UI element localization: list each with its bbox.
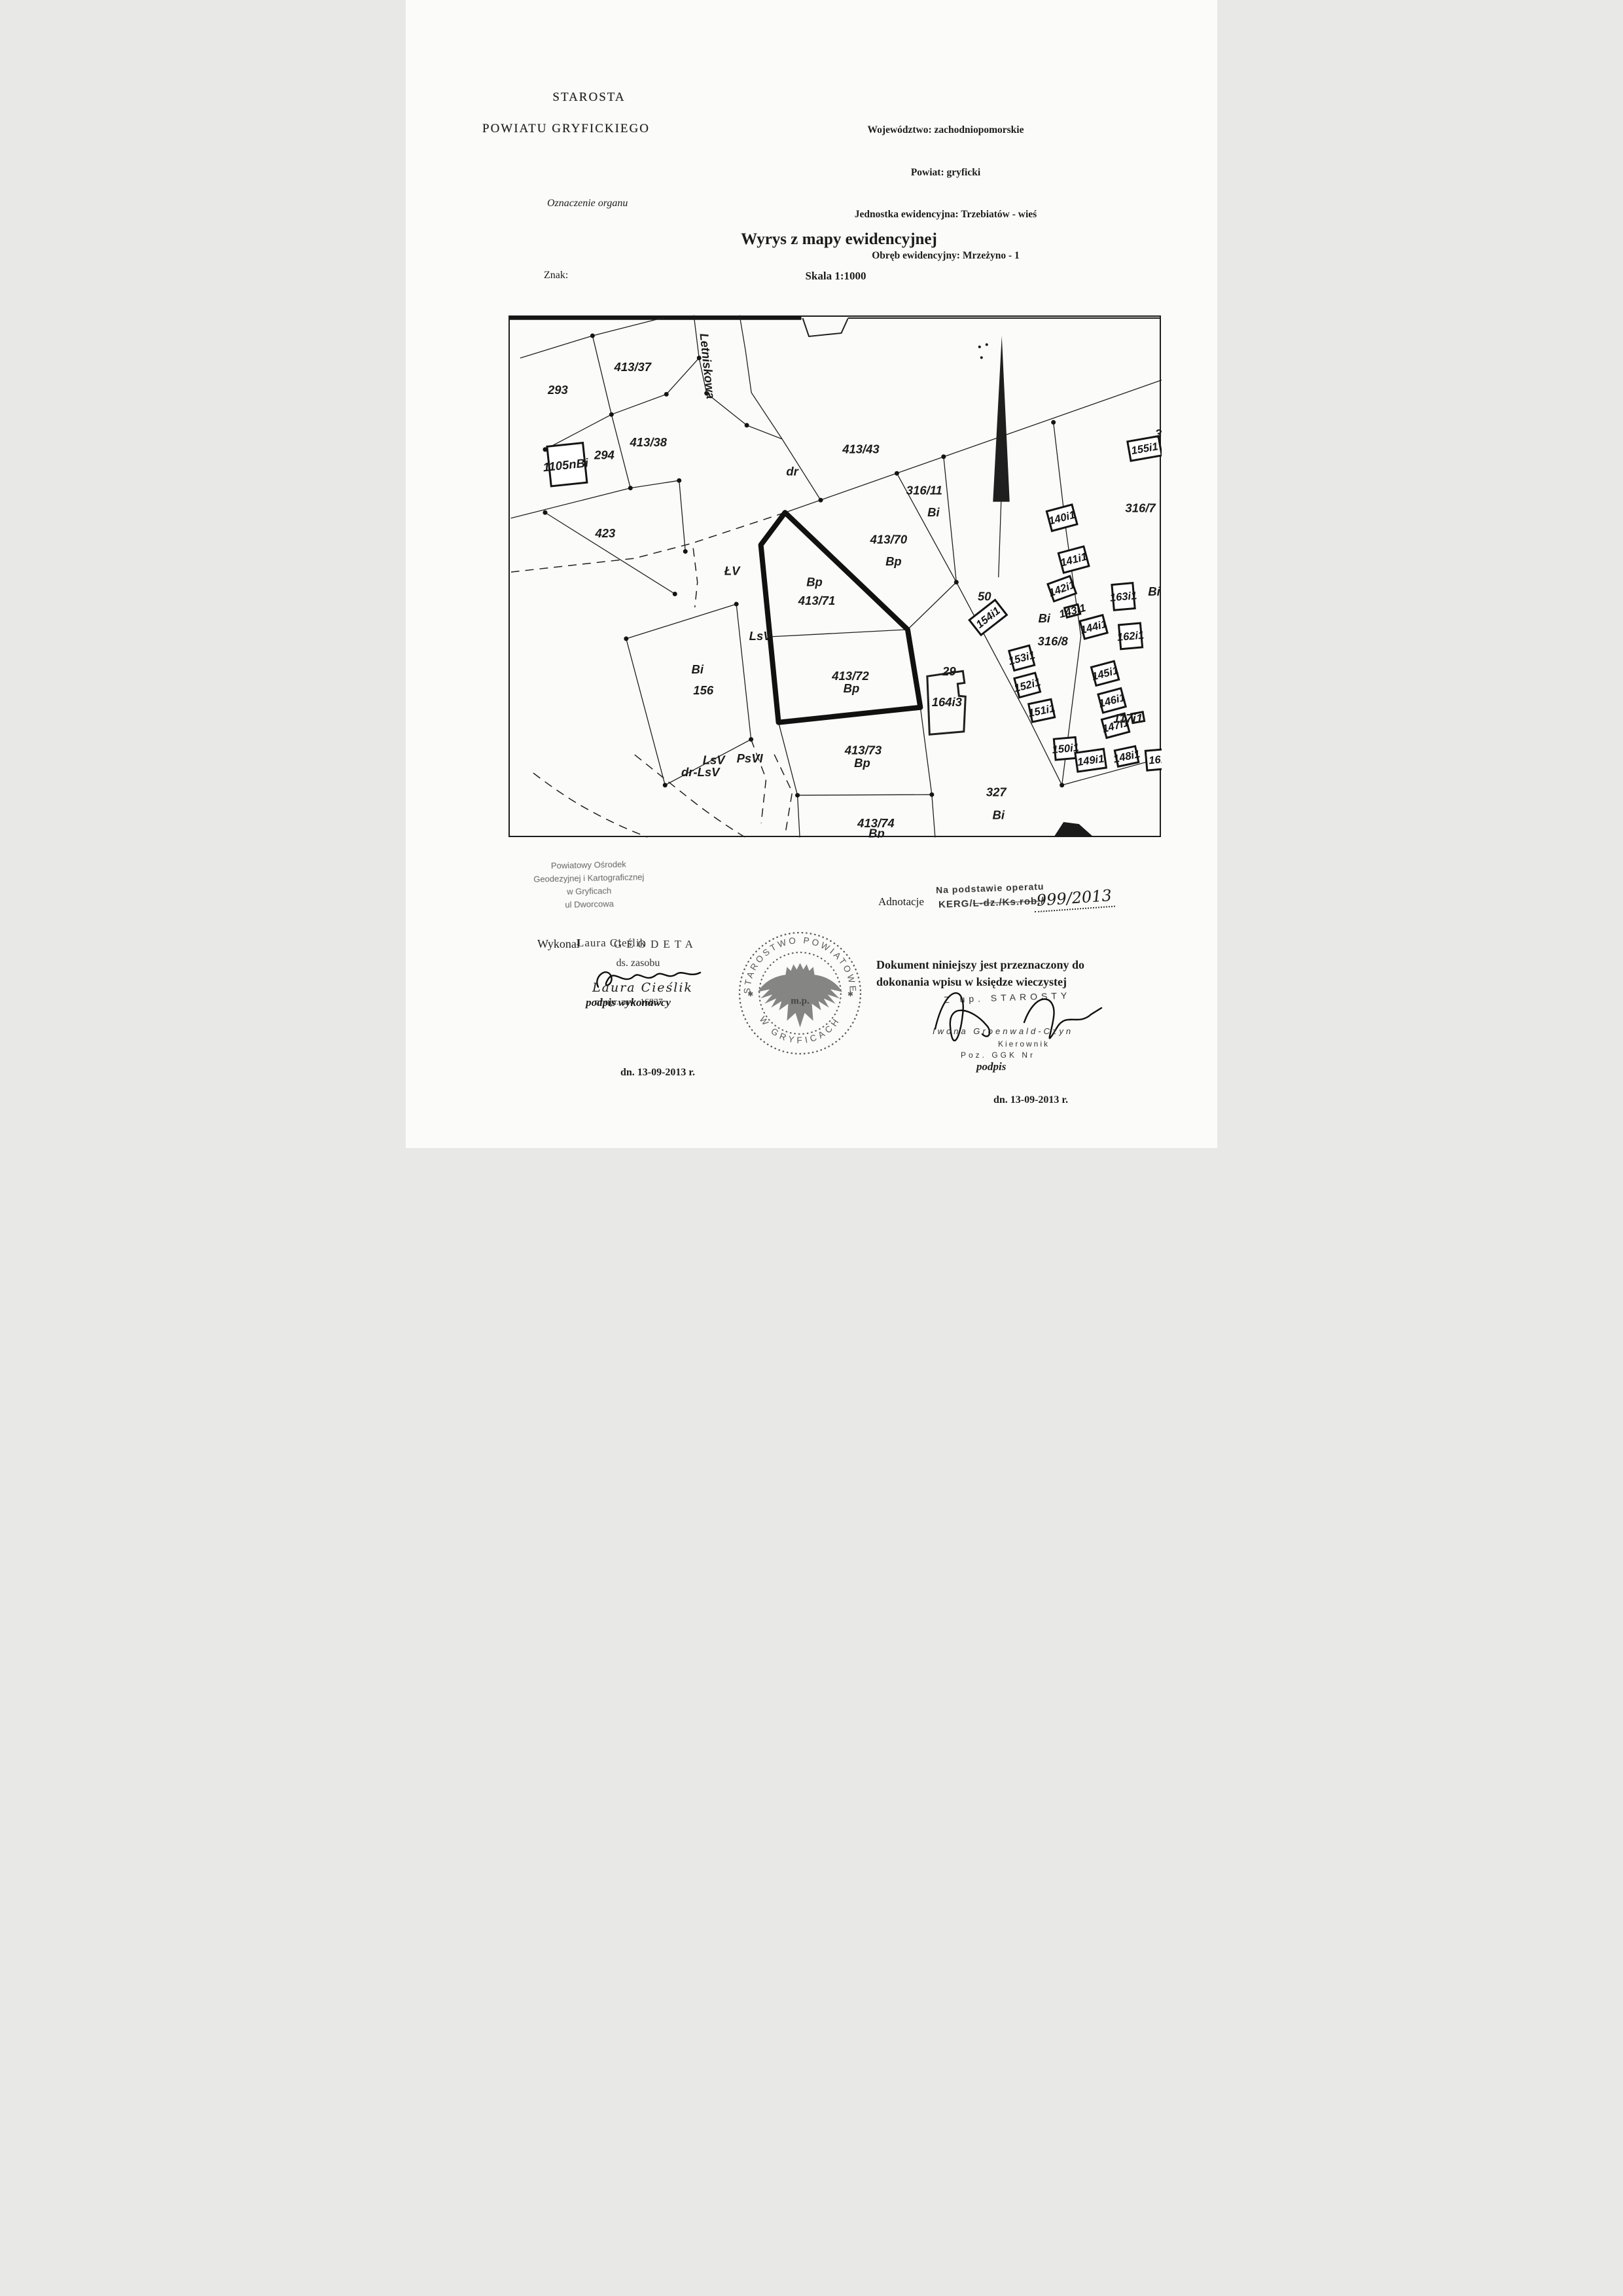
cut-building-shape [1054, 822, 1094, 837]
building-149i1: 149i1 [1075, 749, 1107, 772]
svg-text:143i1: 143i1 [1058, 602, 1087, 620]
map-label-Bp: Bp [885, 554, 902, 568]
znak-label: Znak: [544, 270, 568, 281]
region-powiat: Powiat: gryficki [746, 167, 1145, 179]
map-scale: Skala 1:1000 [705, 270, 967, 283]
map-label-Bi: Bi [1038, 611, 1050, 625]
kerg-number-handwritten: 999/2013 [1033, 886, 1115, 913]
ds-zasobu-stamp: ds. zasobu [596, 958, 681, 969]
authority-name-line1: STAROSTA [452, 90, 726, 105]
podpis-wykonawcy-label: podpis wykonawcy [569, 996, 687, 1009]
wykonal-label: Wykonał [537, 937, 580, 951]
adnotacje-label: Adnotacje [878, 895, 924, 908]
map-label-164i3: 164i3 [932, 695, 963, 709]
building-144i1: 144i1 [1079, 615, 1109, 639]
approver-role-stamp: Kierownik [998, 1039, 1050, 1049]
executor-name-script: Laura Cieślik [587, 980, 698, 995]
date-right: dn. 13-09-2013 r. [975, 1094, 1086, 1106]
svg-text:162i1: 162i1 [1116, 630, 1145, 644]
poz-ggk-stamp: Poz. GGK Nr [961, 1050, 1035, 1060]
cadastral-map: 154i1140i1141i1142i1143i1144i1145i1146i1… [508, 315, 1162, 838]
map-label-dr: dr [786, 465, 799, 478]
kerg-prefix: KERG/ [938, 898, 973, 910]
map-label-Bi: Bi [993, 808, 1005, 822]
authority-header: STAROSTA POWIATU GRYFICKIEGO [452, 90, 726, 136]
official-round-seal: STAROSTWO POWIATOWE W GRYFICACH ✱ ✱ m.p. [737, 930, 863, 1056]
seal-star-right: ✱ [847, 991, 853, 999]
building-141i1: 141i1 [1058, 547, 1090, 573]
map-joint-dots [543, 333, 1064, 797]
map-label-Bp: Bp [854, 756, 870, 770]
scanned-document-page: STAROSTA POWIATU GRYFICKIEGO Oznaczenie … [406, 0, 1217, 1148]
geodeta-stamp: GEODETA [614, 938, 698, 951]
authority-caption: Oznaczenie organu [547, 198, 628, 209]
map-label-LsV: LsV [749, 629, 773, 643]
map-label-316/7: 316/7 [1125, 501, 1156, 515]
map-label-413/71: 413/71 [798, 594, 836, 607]
map-label-413/73: 413/73 [844, 744, 882, 757]
north-arrow [978, 336, 1010, 577]
building-153i1: 153i1 [1006, 645, 1037, 672]
map-label-413/37: 413/37 [614, 360, 652, 374]
map-label-PsVI: PsVI [737, 751, 764, 765]
map-label-Bi: Bi [927, 505, 940, 519]
office-stamp-line: ul Dworcowa [504, 896, 674, 912]
region-obreb: Obręb ewidencyjny: Mrzeżyno - 1 [746, 250, 1145, 262]
map-label-316/8: 316/8 [1038, 634, 1069, 648]
building-163i1: 163i1 [1109, 583, 1137, 610]
office-ink-stamp: Powiatowy Ośrodek Geodezyjnej i Kartogra… [503, 857, 675, 912]
date-left: dn. 13-09-2013 r. [602, 1067, 713, 1079]
seal-eagle [758, 963, 842, 1028]
map-label-117i1: 117i1 [1113, 711, 1143, 725]
building-145i1: 145i1 [1090, 660, 1120, 686]
svg-text:163i1: 163i1 [1109, 590, 1137, 604]
document-title: Wyrys z mapy ewidencyjnej [643, 230, 1035, 249]
map-label-423: 423 [594, 526, 616, 540]
map-label-29: 29 [942, 664, 956, 678]
podpis-label: podpis [976, 1060, 1006, 1073]
map-label-413/38: 413/38 [630, 435, 668, 449]
building-154i1: 154i1 [969, 600, 1007, 636]
seal-star-left: ✱ [747, 991, 753, 999]
map-label-156: 156 [693, 683, 714, 697]
map-label-413/70: 413/70 [870, 533, 908, 547]
map-label-Bi: Bi [1148, 584, 1160, 598]
cadastral-map-svg: 154i1140i1141i1142i1143i1144i1145i1146i1… [508, 315, 1162, 838]
map-label-ŁV: ŁV [724, 564, 741, 578]
map-label-dr-LsV: dr-LsV [681, 765, 721, 779]
map-label-Bp: Bp [806, 575, 823, 588]
map-label-50: 50 [978, 589, 991, 603]
map-label-327: 327 [986, 785, 1007, 799]
building-152i1: 152i1 [1012, 672, 1043, 698]
building-143i1: 143i1 [1058, 602, 1087, 620]
map-label-413/72: 413/72 [831, 669, 869, 683]
map-label-Bp: Bp [868, 827, 885, 838]
building-140i1: 140i1 [1046, 505, 1078, 531]
purpose-line2: dokonania wpisu w księdze wieczystej [876, 975, 1067, 989]
map-label-413/43: 413/43 [842, 442, 880, 456]
building-146i1: 146i1 [1096, 688, 1127, 713]
map-label-LsV: LsV [703, 753, 726, 767]
map-label-316/11: 316/11 [906, 484, 942, 497]
authority-name-line2: POWIATU GRYFICKIEGO [452, 122, 681, 136]
map-label-294: 294 [594, 448, 615, 462]
approver-name-stamp: Iwona Groenwald-Czyn [933, 1026, 1073, 1036]
region-jednostka: Jednostka ewidencyjna: Trzebiatów - wieś [746, 209, 1145, 221]
map-label-Bi: Bi [691, 662, 704, 676]
kerg-stamp: KERG/L-dz./Ks.rob./ [938, 895, 1044, 910]
region-voivodeship: Województwo: zachodniopomorskie [746, 124, 1145, 136]
map-label-3: 3 [1155, 427, 1162, 440]
building-162i1: 162i1 [1116, 623, 1145, 649]
na-podstawie-stamp: Na podstawie operatu [936, 881, 1044, 895]
seal-mp: m.p. [791, 996, 810, 1007]
map-label-293: 293 [547, 383, 569, 397]
map-label-Bp: Bp [844, 681, 860, 695]
svg-text:161: 161 [1149, 753, 1162, 766]
building-161: 161 [1145, 749, 1162, 770]
purpose-line1: Dokument niniejszy jest przeznaczony do [876, 958, 1084, 972]
building-148i1: 148i1 [1112, 745, 1142, 767]
building-151i1: 151i1 [1027, 699, 1057, 723]
